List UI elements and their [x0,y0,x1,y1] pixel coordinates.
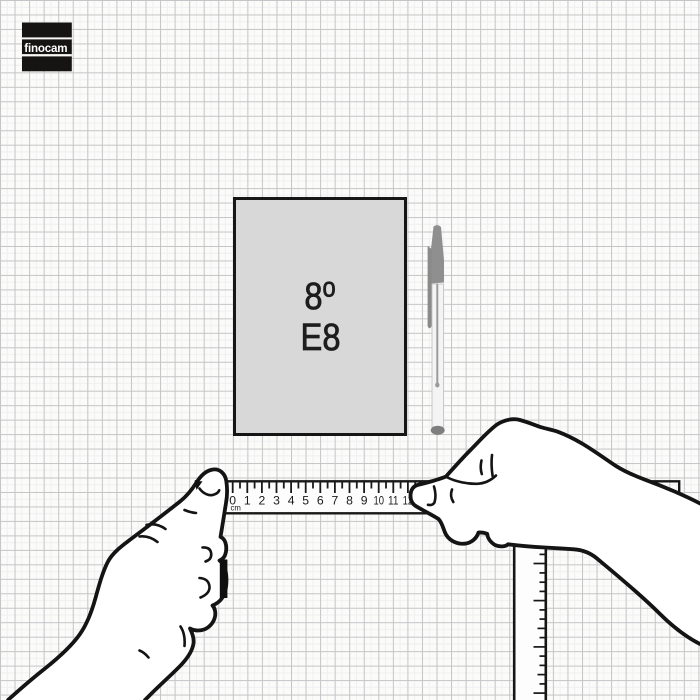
svg-text:E8: E8 [301,316,341,359]
svg-text:11: 11 [388,494,399,508]
svg-text:6: 6 [317,494,324,508]
svg-text:finocam: finocam [24,42,67,55]
svg-text:2: 2 [259,494,266,508]
svg-text:1: 1 [244,494,251,508]
svg-text:4: 4 [288,494,295,508]
svg-text:9: 9 [361,494,368,508]
svg-text:5: 5 [302,494,309,508]
svg-text:cm: cm [231,504,241,513]
svg-text:8: 8 [346,494,353,508]
svg-text:7: 7 [332,494,339,508]
svg-text:3: 3 [273,494,280,508]
svg-text:10: 10 [373,494,384,508]
